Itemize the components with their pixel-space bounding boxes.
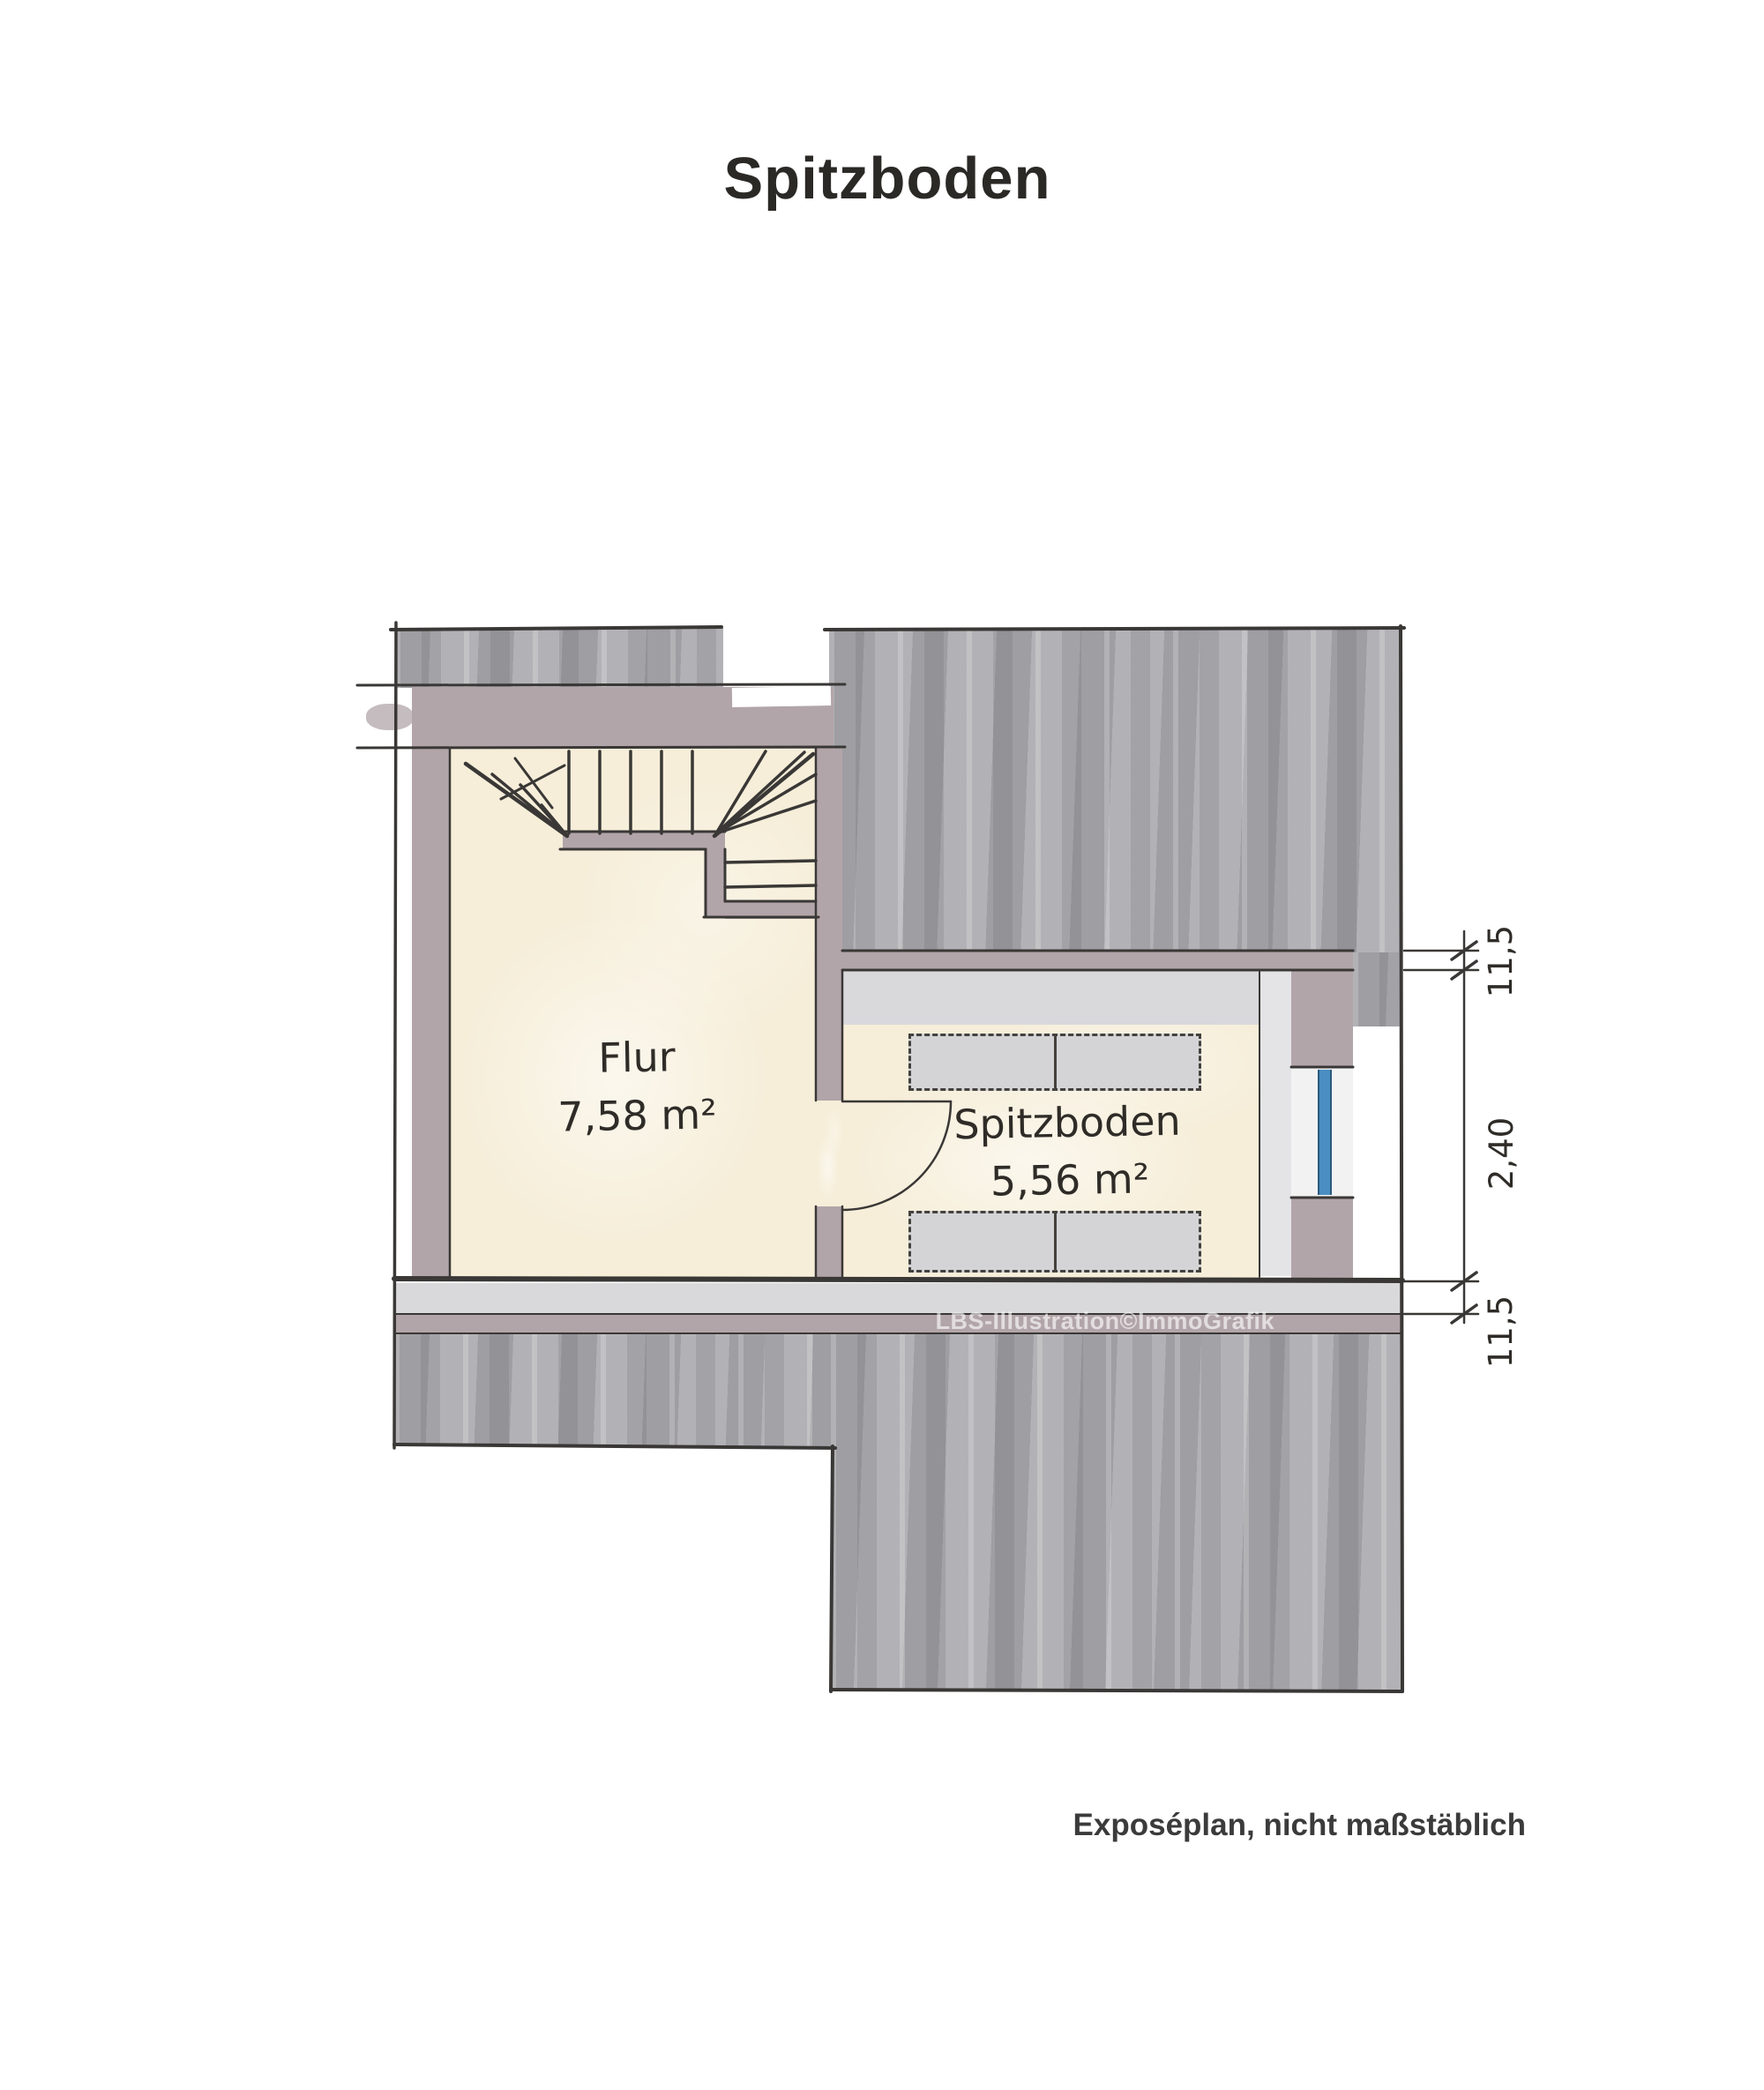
watermark: LBS-Illustration©ImmoGrafik	[869, 1308, 1274, 1335]
roof-wash-bottom-left	[394, 1333, 833, 1446]
wall-middle-lower	[816, 1206, 842, 1281]
wall-flur-left	[412, 749, 450, 1281]
dimension-bottom-wall: 11,5	[1484, 1279, 1519, 1385]
roof-wash-bottom-right	[831, 1333, 1402, 1691]
dimension-top-wall: 11,5	[1484, 908, 1519, 1014]
wall-torn-notch	[732, 686, 831, 707]
wall-right-upper	[1291, 970, 1353, 1067]
room-area-flur: 7,58 m²	[529, 1090, 746, 1141]
dimension-room-depth: 2,40	[1484, 1101, 1520, 1206]
roof-wash-right-margin	[1353, 952, 1402, 1026]
floorplan-page: Spitzboden	[0, 0, 1764, 2090]
window-glass-icon	[1318, 1070, 1332, 1195]
storage-box-divider	[1054, 1211, 1057, 1273]
room-label-spitzboden: Spitzboden	[931, 1096, 1205, 1148]
storage-box-divider	[1054, 1034, 1057, 1091]
wall-right-lower	[1291, 1198, 1353, 1281]
door-opening-floor	[816, 1101, 842, 1206]
room-label-flur: Flur	[549, 1032, 726, 1082]
wall-spitzboden-top	[842, 951, 1353, 970]
dimension-lines	[1404, 931, 1478, 1323]
footer-note: Exposéplan, nicht maßstäblich	[1041, 1808, 1526, 1843]
stair-landing-bar-bottom	[725, 901, 816, 919]
stair-landing-bar-top	[563, 832, 725, 849]
room-flur-floor	[450, 749, 816, 1278]
page-title: Spitzboden	[617, 145, 1157, 213]
roof-wash-top-right	[829, 628, 1402, 952]
storage-box-lower	[908, 1211, 1201, 1273]
wall-wash-spill	[366, 704, 414, 730]
wall-middle-upper	[816, 749, 842, 1101]
storage-box-upper	[908, 1034, 1201, 1091]
roof-slope-strip-right	[1259, 970, 1291, 1276]
roof-slope-band-spitzboden	[842, 970, 1259, 1025]
stair-landing-bar-vertical	[706, 849, 725, 917]
room-area-spitzboden: 5,56 m²	[938, 1153, 1203, 1205]
roof-wash-top-left	[395, 628, 723, 688]
